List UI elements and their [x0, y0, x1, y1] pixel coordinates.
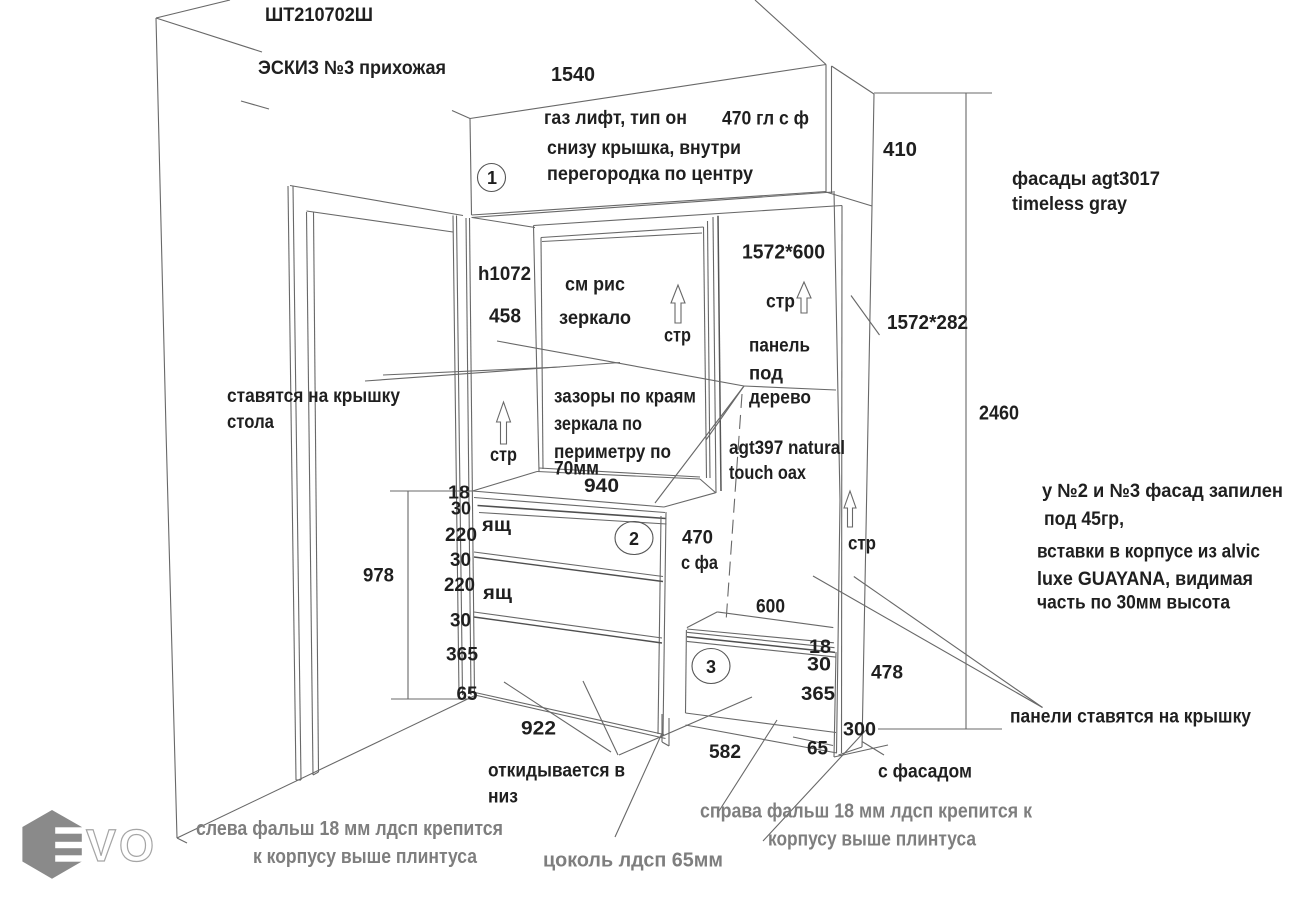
- svg-text:снизу крышка, внутри: снизу крышка, внутри: [547, 138, 741, 159]
- svg-text:1540: 1540: [551, 64, 595, 86]
- svg-text:к корпусу выше плинтуса: к корпусу выше плинтуса: [253, 846, 478, 868]
- svg-text:низ: низ: [488, 787, 518, 808]
- svg-text:1: 1: [487, 168, 497, 188]
- svg-text:с фа: с фа: [681, 553, 718, 574]
- svg-text:940: 940: [584, 476, 619, 497]
- svg-text:65: 65: [807, 739, 828, 760]
- svg-text:h1072: h1072: [478, 264, 531, 285]
- svg-text:газ лифт, тип он: газ лифт, тип он: [544, 108, 687, 129]
- svg-text:откидывается в: откидывается в: [488, 761, 625, 782]
- svg-text:стр: стр: [848, 534, 876, 555]
- svg-text:478: 478: [871, 663, 903, 684]
- svg-text:30: 30: [807, 655, 831, 676]
- svg-text:touch oax: touch oax: [729, 463, 806, 484]
- svg-text:30: 30: [450, 611, 471, 632]
- svg-text:365: 365: [446, 645, 478, 666]
- svg-text:перегородка по центру: перегородка по центру: [547, 164, 753, 185]
- svg-text:справа фальш 18 мм лдсп крепи: справа фальш 18 мм лдсп крепится к: [700, 801, 1033, 823]
- svg-text:2460: 2460: [979, 403, 1019, 425]
- svg-text:VO: VO: [86, 820, 157, 871]
- svg-text:365: 365: [801, 684, 835, 705]
- svg-text:timeless gray: timeless gray: [1012, 194, 1127, 215]
- svg-text:410: 410: [883, 139, 917, 161]
- svg-text:панель: панель: [749, 336, 810, 357]
- svg-text:30: 30: [451, 499, 471, 519]
- svg-text:458: 458: [489, 306, 521, 328]
- svg-text:600: 600: [756, 597, 785, 618]
- svg-text:470 гл с ф: 470 гл с ф: [722, 109, 809, 130]
- svg-text:у №2 и №3 фасад запилен: у №2 и №3 фасад запилен: [1042, 481, 1283, 502]
- svg-text:300: 300: [843, 720, 876, 741]
- svg-text:фасады agt3017: фасады agt3017: [1012, 169, 1160, 190]
- svg-text:220: 220: [444, 575, 475, 596]
- svg-text:ящ: ящ: [482, 583, 512, 604]
- svg-text:стола: стола: [227, 412, 274, 433]
- svg-text:30: 30: [450, 550, 471, 571]
- svg-text:корпусу выше плинтуса: корпусу выше плинтуса: [768, 829, 977, 851]
- svg-text:зеркало: зеркало: [559, 308, 631, 329]
- svg-text:3: 3: [706, 657, 716, 677]
- svg-text:220: 220: [445, 525, 477, 546]
- svg-text:зазоры по краям: зазоры по краям: [554, 387, 696, 408]
- svg-text:зеркала по: зеркала по: [554, 414, 642, 435]
- svg-text:2: 2: [629, 529, 639, 549]
- svg-text:978: 978: [363, 566, 394, 587]
- svg-text:470: 470: [682, 528, 713, 549]
- svg-text:ставятся на крышку: ставятся на крышку: [227, 386, 400, 407]
- svg-text:ШТ210702Ш: ШТ210702Ш: [265, 5, 373, 26]
- svg-text:582: 582: [709, 742, 741, 763]
- svg-text:панели ставятся на крышку: панели ставятся на крышку: [1010, 707, 1251, 728]
- svg-text:стр: стр: [766, 292, 795, 313]
- svg-text:стр: стр: [490, 445, 517, 466]
- svg-text:см рис: см рис: [565, 275, 625, 296]
- svg-text:цоколь лдсп 65мм: цоколь лдсп 65мм: [543, 850, 723, 872]
- svg-text:65: 65: [457, 684, 478, 705]
- svg-text:с фасадом: с фасадом: [878, 762, 972, 783]
- svg-text:1572*282: 1572*282: [887, 312, 968, 334]
- svg-text:922: 922: [521, 719, 556, 740]
- svg-text:дерево: дерево: [749, 388, 811, 409]
- svg-text:1572*600: 1572*600: [742, 242, 825, 264]
- svg-text:luxe GUAYANA, видимая: luxe GUAYANA, видимая: [1037, 569, 1253, 590]
- svg-text:agt397 natural: agt397 natural: [729, 438, 845, 459]
- svg-text:вставки в корпусе из alvic: вставки в корпусе из alvic: [1037, 542, 1260, 563]
- svg-text:ЭСКИЗ №3 прихожая: ЭСКИЗ №3 прихожая: [258, 58, 446, 79]
- svg-text:под: под: [749, 364, 783, 385]
- svg-text:ящ: ящ: [481, 515, 511, 536]
- svg-text:слева фальш 18 мм лдсп крепит: слева фальш 18 мм лдсп крепится: [196, 818, 503, 840]
- svg-text:стр: стр: [664, 326, 691, 347]
- svg-text:часть по 30мм высота: часть по 30мм высота: [1037, 593, 1230, 614]
- svg-text:под 45гр,: под 45гр,: [1044, 509, 1124, 530]
